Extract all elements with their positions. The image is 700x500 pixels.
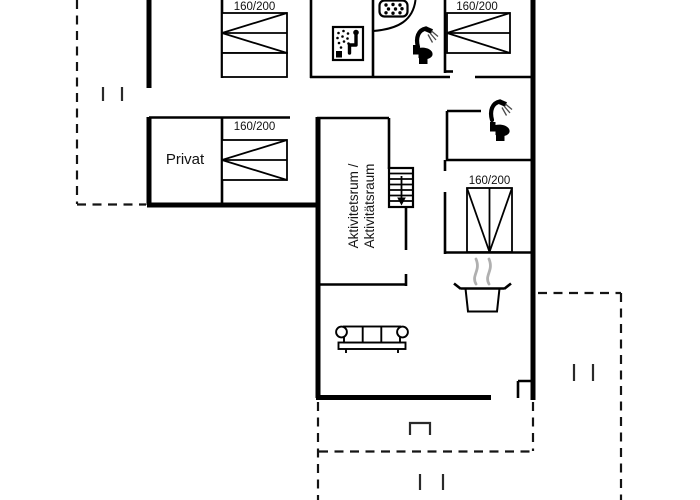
sofa-icon [336, 327, 408, 354]
bed-size-label: 160/200 [222, 121, 287, 133]
shower-icon [491, 102, 512, 121]
private-room-label: Privat [150, 152, 220, 168]
activity-room-label-line2: Aktivitätsraum [362, 139, 378, 273]
bed-private-room [222, 140, 287, 180]
staircase [389, 168, 413, 207]
bed-size-label: 160/200 [222, 1, 287, 13]
toilet-icon [490, 122, 510, 141]
toilet-icon [413, 45, 433, 64]
cooking-pot-icon [454, 259, 511, 312]
steam-icon [475, 259, 491, 284]
shower-icon [417, 29, 438, 48]
activity-room-label-line1: Aktivitetsrum / [346, 139, 362, 273]
bed-size-label: 160/200 [458, 175, 521, 187]
shower-head-plate-icon [380, 1, 408, 17]
bed-foot-extension [222, 53, 287, 77]
terrace-step-marker [410, 423, 430, 435]
bed-top-right [447, 13, 510, 53]
floor-plan: 160/200 160/200 160/200 160/200 Privat A… [0, 0, 700, 500]
bed-top-left [222, 13, 287, 77]
bed-middle-right [467, 188, 512, 252]
sauna-icon [333, 27, 363, 60]
sauna-bucket [336, 51, 342, 58]
bed-size-label: 160/200 [444, 1, 510, 13]
activity-room-label: Aktivitetsrum / Aktivitätsraum [346, 139, 378, 273]
